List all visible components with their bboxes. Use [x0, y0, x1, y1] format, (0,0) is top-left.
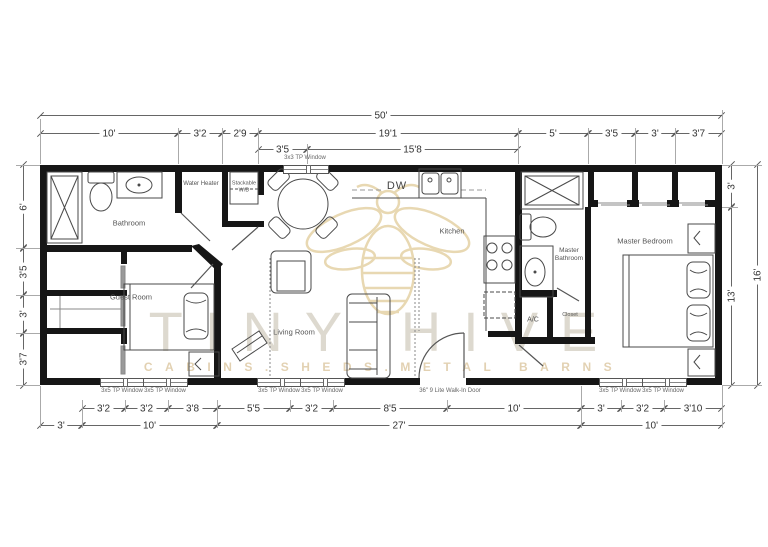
living-furniture	[232, 251, 390, 378]
room-label-kitchen: Kitchen	[439, 227, 464, 236]
window-guest-1	[100, 378, 145, 387]
kitchen-fixtures	[270, 169, 515, 376]
master-bed	[623, 224, 715, 376]
label-walk-in-door: 36" 9 Lite Walk-In Door	[419, 388, 481, 394]
bathroom-fixtures	[47, 172, 162, 243]
label-window-3x5: 3x5 TP Window	[144, 388, 186, 394]
label-water-heater: Water Heater	[183, 181, 218, 187]
master-bathroom-fixtures	[520, 172, 583, 297]
label-window-3x5: 3x5 TP Window	[642, 388, 684, 394]
room-label-living-room: Living Room	[273, 328, 315, 337]
window-master-1	[599, 378, 644, 387]
label-dishwasher: DW	[387, 180, 407, 192]
label-window-3x5: 3x5 TP Window	[101, 388, 143, 394]
floor-plan: TINY HIVE CABINS.SHEDS.METAL BARNS	[0, 0, 768, 547]
label-stackable-wd: Stackable W/D	[230, 180, 258, 193]
window-master-2	[642, 378, 687, 387]
label-ac: A/C	[527, 317, 539, 324]
room-label-master-bathroom: Master Bathroom	[551, 247, 587, 263]
plan-drawing	[0, 0, 768, 547]
window-living-2	[300, 378, 345, 387]
window-guest-2	[143, 378, 188, 387]
room-label-bathroom: Bathroom	[113, 219, 146, 228]
room-label-master-bedroom: Master Bedroom	[617, 237, 672, 246]
label-closet: Closet	[562, 312, 578, 318]
closet-doors	[50, 203, 708, 374]
label-window-3x5: 3x5 TP Window	[599, 388, 641, 394]
label-window-3x3: 3x3 TP Window	[284, 155, 326, 161]
label-window-3x5: 3x5 TP Window	[301, 388, 343, 394]
window-top-3x3	[283, 165, 329, 174]
window-living-1	[257, 378, 302, 387]
dining-set	[266, 167, 339, 240]
room-label-guest-room: Guest Room	[110, 293, 152, 302]
label-window-3x5: 3x5 TP Window	[258, 388, 300, 394]
